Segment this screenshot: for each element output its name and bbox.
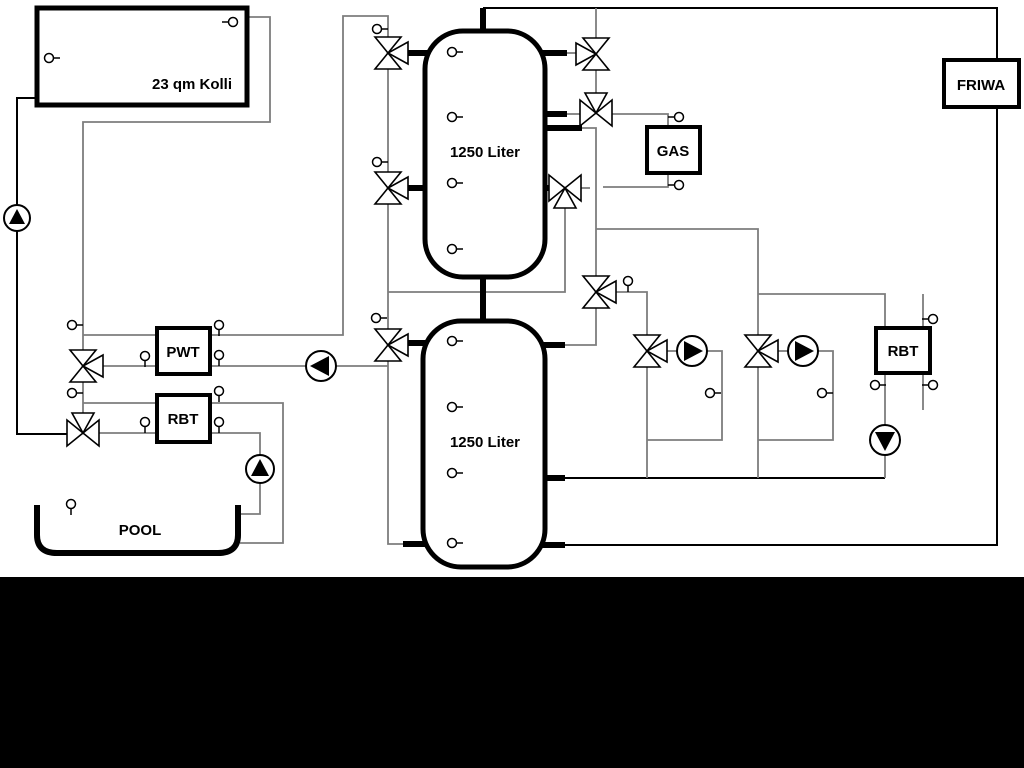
friwa-label: FRIWA [957, 77, 1005, 94]
sensor-bulb [229, 18, 238, 27]
sensor-bulb [448, 113, 457, 122]
sensor-bulb [68, 321, 77, 330]
sensor-bulb [818, 389, 827, 398]
sensor-bulb [675, 181, 684, 190]
sensor-bulb [215, 351, 224, 360]
sensor-bulb [67, 500, 76, 509]
sensor-bulb [624, 277, 633, 286]
sensor-bulb [68, 389, 77, 398]
tank1-label: 1250 Liter [450, 144, 520, 161]
pool-label: POOL [119, 522, 162, 539]
diagram-canvas: 1250 Liter1250 Liter23 qm KolliGASFRIWAP… [0, 0, 1024, 768]
rbt2-label: RBT [888, 343, 919, 360]
sensor-bulb [45, 54, 54, 63]
sensor-bulb [448, 48, 457, 57]
hydraulic-schematic: 1250 Liter1250 Liter23 qm KolliGASFRIWAP… [0, 0, 1024, 768]
sensor-bulb [373, 25, 382, 34]
sensor-bulb [871, 381, 880, 390]
sensor-bulb [929, 315, 938, 324]
sensor-bulb [141, 418, 150, 427]
sensor-bulb [929, 381, 938, 390]
pump-pool [246, 455, 274, 483]
pwt-label: PWT [166, 344, 199, 361]
sensor-bulb [448, 179, 457, 188]
tank2-label: 1250 Liter [450, 434, 520, 451]
sensor-bulb [675, 113, 684, 122]
pump-pwt [306, 351, 336, 381]
sensor-bulb [372, 314, 381, 323]
sensor-bulb [448, 245, 457, 254]
sensor-bulb [215, 321, 224, 330]
rbt1-label: RBT [168, 411, 199, 428]
bottom-black-band [0, 577, 1024, 768]
pump-rbt2 [870, 425, 900, 455]
sensor-bulb [448, 539, 457, 548]
collector-label: 23 qm Kolli [152, 76, 232, 93]
sensor-bulb [373, 158, 382, 167]
sensor-bulb [448, 403, 457, 412]
sensor-bulb [448, 337, 457, 346]
pump-heating-1 [677, 336, 707, 366]
pump-solar [4, 205, 30, 231]
sensor-bulb [215, 418, 224, 427]
sensor-bulb [215, 387, 224, 396]
pump-heating-2 [788, 336, 818, 366]
gas-label: GAS [657, 143, 690, 160]
sensor-bulb [448, 469, 457, 478]
sensor-bulb [706, 389, 715, 398]
sensor-bulb [141, 352, 150, 361]
